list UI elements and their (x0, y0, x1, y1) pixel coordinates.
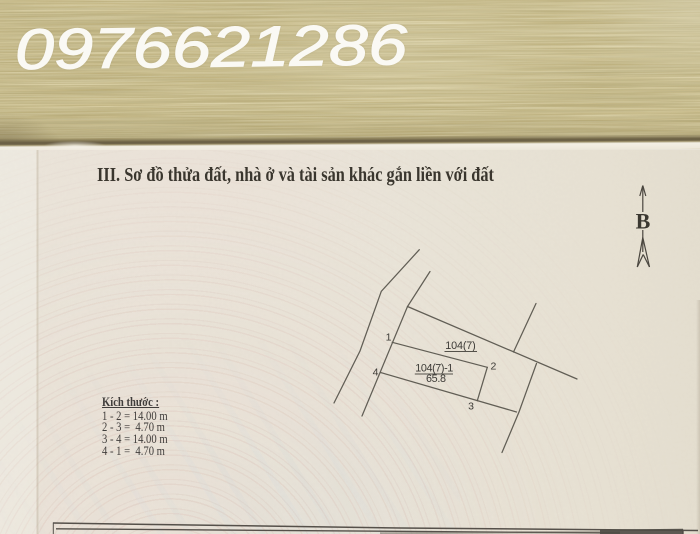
svg-text:65.8: 65.8 (426, 373, 446, 385)
svg-text:3: 3 (468, 401, 474, 413)
svg-text:104(7): 104(7) (445, 340, 476, 352)
svg-text:1: 1 (386, 332, 392, 344)
svg-text:2: 2 (491, 361, 497, 373)
svg-text:B: B (636, 209, 651, 234)
svg-text:4: 4 (373, 367, 379, 379)
